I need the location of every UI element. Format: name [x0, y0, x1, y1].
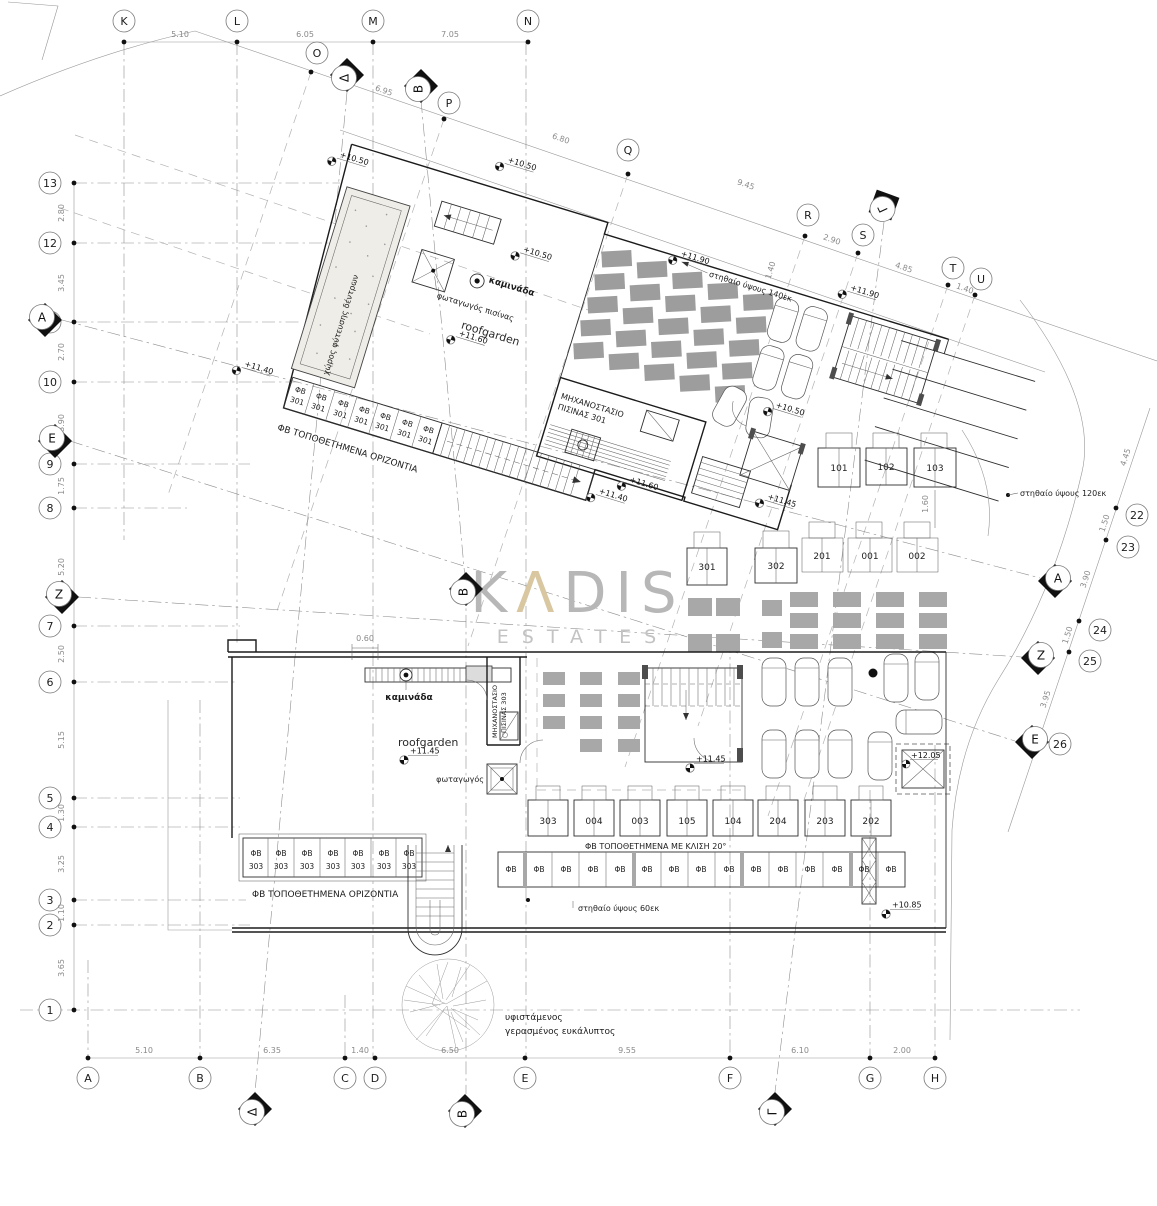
- svg-text:ΦΒ: ΦΒ: [401, 417, 414, 429]
- svg-text:1.75: 1.75: [57, 477, 66, 495]
- svg-text:+11.45: +11.45: [410, 747, 440, 756]
- svg-text:ΦΒ: ΦΒ: [275, 849, 286, 858]
- pv-terrace-groups: [688, 592, 947, 652]
- svg-text:1.10: 1.10: [57, 904, 66, 922]
- upper-building: χώρος φύτευσης δέντρων καμινάδα φωταγωγό…: [218, 96, 1053, 640]
- svg-text:ΦΒ: ΦΒ: [668, 865, 679, 874]
- svg-text:Δ: Δ: [338, 73, 352, 82]
- svg-text:ΦΒ: ΦΒ: [378, 849, 389, 858]
- svg-text:303: 303: [249, 862, 264, 871]
- pv-array-upper: [569, 242, 778, 411]
- upper-stairwell: [829, 312, 941, 406]
- svg-text:+12.05: +12.05: [911, 751, 941, 760]
- svg-text:+11.45: +11.45: [767, 492, 798, 509]
- svg-text:103: 103: [926, 464, 943, 474]
- svg-text:ΦΒ: ΦΒ: [327, 849, 338, 858]
- svg-text:T: T: [949, 262, 957, 275]
- svg-text:M: M: [368, 15, 378, 28]
- svg-text:F: F: [727, 1072, 733, 1085]
- lower-stairwell: [642, 665, 743, 762]
- svg-text:13: 13: [43, 177, 57, 190]
- storage-101: 101: [818, 433, 860, 487]
- plantroom-303-label2: ΠΙΣΙΝΑΣ 303: [500, 692, 508, 733]
- svg-text:3.45: 3.45: [57, 274, 66, 292]
- svg-text:303: 303: [351, 862, 366, 871]
- svg-text:3.65: 3.65: [57, 959, 66, 977]
- svg-text:102: 102: [877, 463, 894, 473]
- svg-text:Β: Β: [412, 85, 426, 93]
- svg-text:R: R: [804, 209, 812, 222]
- dim-060: 0.60: [352, 634, 378, 660]
- grid-diagonal-perpendiculars: [167, 72, 975, 816]
- svg-text:+10.50: +10.50: [507, 155, 538, 172]
- chimney-upper: καμινάδα φωταγωγός πισίνας: [428, 260, 535, 327]
- svg-text:1.30: 1.30: [57, 804, 66, 822]
- svg-text:Q: Q: [624, 144, 633, 157]
- svg-text:ΦΒ: ΦΒ: [379, 411, 392, 423]
- svg-text:Ζ: Ζ: [1037, 649, 1045, 663]
- dim-160: 1.60: [921, 495, 930, 513]
- svg-text:202: 202: [862, 817, 879, 827]
- elevation-1145-stair: +11.45: [686, 755, 726, 773]
- svg-text:C: C: [341, 1072, 349, 1085]
- svg-text:303: 303: [539, 817, 556, 827]
- svg-text:+11.90: +11.90: [849, 283, 880, 300]
- pool-lightwell-label: φωταγωγός πισίνας: [436, 290, 516, 323]
- storage-row-lower: 303 004 003 105 104 204 203 202: [528, 786, 891, 836]
- svg-text:6.10: 6.10: [791, 1046, 809, 1055]
- svg-text:ΦΒ: ΦΒ: [294, 385, 307, 397]
- pv-array-lower: [543, 672, 640, 752]
- svg-text:303: 303: [402, 862, 417, 871]
- storage-002: 002: [897, 522, 938, 572]
- svg-text:ΦΒ: ΦΒ: [505, 865, 516, 874]
- u-stair: [408, 845, 462, 955]
- chimney-label-lower: καμινάδα: [385, 693, 432, 703]
- svg-text:+11.45: +11.45: [696, 755, 726, 764]
- svg-text:2.00: 2.00: [893, 1046, 911, 1055]
- section-marker-epsilon-right: Ε: [1015, 725, 1049, 759]
- axis-top: K L M N 5.10 6.05 7.05: [113, 10, 539, 44]
- svg-text:1: 1: [47, 1004, 54, 1017]
- svg-text:ΦΒ: ΦΒ: [301, 849, 312, 858]
- svg-text:105: 105: [678, 817, 695, 827]
- skylight-1205: +12.05: [896, 744, 950, 794]
- storage-301: 301: [687, 532, 727, 585]
- site-boundary: [0, 2, 1157, 1040]
- section-marker-gamma-bottom: Γ: [758, 1092, 792, 1126]
- svg-text:ΦΒ: ΦΒ: [885, 865, 896, 874]
- elevation-1145-lower: +11.45: [400, 747, 440, 765]
- svg-text:7: 7: [47, 620, 54, 633]
- svg-text:ΦΒ: ΦΒ: [560, 865, 571, 874]
- svg-text:ΦΒ: ΦΒ: [422, 424, 435, 436]
- svg-text:0.60: 0.60: [356, 634, 374, 643]
- svg-text:H: H: [931, 1072, 939, 1085]
- svg-text:ΦΒ: ΦΒ: [777, 865, 788, 874]
- svg-text:104: 104: [724, 817, 741, 827]
- svg-text:5.10: 5.10: [171, 30, 189, 39]
- svg-text:3.95: 3.95: [1039, 689, 1053, 709]
- svg-text:ΦΒ: ΦΒ: [587, 865, 598, 874]
- svg-text:S: S: [860, 229, 867, 242]
- svg-text:ΦΒ: ΦΒ: [750, 865, 761, 874]
- svg-text:301: 301: [353, 414, 370, 427]
- svg-text:5.15: 5.15: [57, 731, 66, 749]
- grid-vertical-lines: [88, 42, 935, 1058]
- svg-text:ΦΒ: ΦΒ: [315, 391, 328, 403]
- svg-text:301: 301: [289, 395, 306, 408]
- storage-001: 001: [848, 522, 892, 572]
- svg-text:2.80: 2.80: [57, 204, 66, 222]
- svg-text:ΦΒ: ΦΒ: [831, 865, 842, 874]
- storage-103: 103: [914, 433, 956, 487]
- svg-text:003: 003: [631, 817, 648, 827]
- svg-text:3: 3: [47, 894, 54, 907]
- svg-text:ΦΒ: ΦΒ: [250, 849, 261, 858]
- section-marker-beta-top: Β: [404, 69, 438, 103]
- svg-text:301: 301: [310, 401, 327, 414]
- svg-text:1.50: 1.50: [1098, 513, 1112, 533]
- svg-text:B: B: [196, 1072, 204, 1085]
- svg-text:ΦΒ: ΦΒ: [804, 865, 815, 874]
- svg-text:ΦΒ: ΦΒ: [403, 849, 414, 858]
- svg-text:004: 004: [585, 817, 602, 827]
- kadis-watermark: KΛDIS ESTATES: [470, 561, 685, 648]
- svg-text:3.25: 3.25: [57, 855, 66, 873]
- section-marker-alpha-left: Α: [28, 303, 62, 337]
- pool-lightwell: [412, 249, 454, 291]
- svg-text:6.05: 6.05: [296, 30, 314, 39]
- svg-text:6.35: 6.35: [263, 1046, 281, 1055]
- svg-text:301: 301: [698, 563, 715, 573]
- svg-text:L: L: [234, 15, 241, 28]
- ramp-lanes: [865, 341, 1035, 501]
- pv-row-15: ΦΒΦΒΦΒΦΒΦΒΦΒΦΒΦΒΦΒΦΒΦΒΦΒΦΒΦΒΦΒ: [498, 852, 905, 887]
- svg-text:303: 303: [300, 862, 315, 871]
- svg-text:303: 303: [377, 862, 392, 871]
- section-marker-delta-bottom: Δ: [238, 1092, 272, 1126]
- svg-text:+10.85: +10.85: [892, 901, 922, 910]
- planting-strip: χώρος φύτευσης δέντρων: [291, 187, 410, 388]
- svg-text:24: 24: [1093, 624, 1107, 637]
- svg-text:1.40: 1.40: [351, 1046, 369, 1055]
- section-marker-epsilon-left: Ε: [38, 424, 72, 458]
- svg-text:101: 101: [830, 464, 847, 474]
- svg-text:ΦΒ: ΦΒ: [352, 849, 363, 858]
- elevation-1085: +10.85: [882, 901, 922, 919]
- storage-201: 201: [802, 522, 843, 572]
- svg-text:ΦΒ: ΦΒ: [614, 865, 625, 874]
- svg-text:4: 4: [47, 821, 54, 834]
- svg-text:302: 302: [767, 562, 784, 572]
- svg-text:ΦΒ: ΦΒ: [337, 398, 350, 410]
- floor-plan-drawing: KΛDIS ESTATES χώρος φύτευσης δέντρων: [0, 0, 1157, 1206]
- svg-text:1.50: 1.50: [1061, 625, 1075, 645]
- svg-text:2.70: 2.70: [57, 343, 66, 361]
- lightwell-lower: φωταγωγός: [436, 764, 517, 794]
- svg-text:201: 201: [813, 552, 830, 562]
- upper-roof-stair: [434, 201, 501, 244]
- svg-text:ΦΒ: ΦΒ: [641, 865, 652, 874]
- svg-text:P: P: [446, 97, 453, 110]
- svg-text:K: K: [120, 15, 128, 28]
- svg-text:U: U: [977, 273, 985, 286]
- watermark-brand: KΛDIS: [470, 561, 685, 626]
- watermark-subtitle: ESTATES: [497, 626, 669, 648]
- svg-text:301: 301: [396, 427, 413, 440]
- parapet-60-label: στηθαίο ύψους 60εκ: [578, 903, 659, 913]
- svg-text:2: 2: [47, 919, 54, 932]
- svg-text:Β: Β: [457, 588, 471, 596]
- svg-text:+10.50: +10.50: [339, 150, 370, 167]
- axis-bottom: A B C D E F G H 5.10 6.35 1.40 6.50 9.55…: [77, 1046, 946, 1089]
- sunbeds-terrace: [762, 652, 942, 780]
- lightwell-label: φωταγωγός: [436, 774, 484, 784]
- svg-text:10: 10: [43, 376, 57, 389]
- svg-text:9.45: 9.45: [736, 177, 756, 191]
- svg-text:303: 303: [274, 862, 289, 871]
- svg-text:25: 25: [1083, 655, 1097, 668]
- svg-text:303: 303: [326, 862, 341, 871]
- svg-text:6: 6: [47, 676, 54, 689]
- svg-text:001: 001: [861, 552, 878, 562]
- svg-text:23: 23: [1121, 541, 1135, 554]
- svg-text:Β: Β: [456, 1110, 470, 1118]
- pv-tilted-label: ΦΒ ΤΟΠΟΘΕΤΗΜΕΝΑ ΜΕ ΚΛΙΣΗ 20°: [585, 842, 726, 851]
- axis-right: 22 23 24 25 26 4.45 1.50 3.90 1.50 3.95: [1008, 408, 1150, 832]
- svg-text:+10.50: +10.50: [522, 245, 553, 262]
- svg-text:203: 203: [816, 817, 833, 827]
- chimney-label: καμινάδα: [487, 276, 535, 299]
- svg-text:E: E: [522, 1072, 529, 1085]
- svg-text:G: G: [866, 1072, 875, 1085]
- svg-text:5.20: 5.20: [57, 558, 66, 576]
- section-marker-gamma-top: Γ: [861, 182, 906, 227]
- svg-text:Ε: Ε: [1031, 733, 1039, 747]
- svg-text:Δ: Δ: [246, 1107, 260, 1116]
- svg-text:Ε: Ε: [48, 432, 56, 446]
- section-marker-beta-bottom: Β: [448, 1094, 482, 1128]
- svg-text:+11.40: +11.40: [243, 359, 274, 376]
- svg-text:2.90: 2.90: [822, 232, 842, 246]
- svg-text:ΦΒ: ΦΒ: [533, 865, 544, 874]
- eucalyptus-tree: υφιστάμενος γερασμένος ευκάλυπτος: [402, 959, 615, 1051]
- svg-text:Α: Α: [1054, 572, 1063, 586]
- svg-text:204: 204: [769, 817, 786, 827]
- pv-horizontal-label-lower: ΦΒ ΤΟΠΟΘΕΤΗΜΕΝΑ ΟΡΙΖΟΝΤΙΑ: [252, 890, 399, 900]
- svg-text:2.50: 2.50: [57, 645, 66, 663]
- svg-text:301: 301: [374, 421, 391, 434]
- svg-text:ΦΒ: ΦΒ: [358, 404, 371, 416]
- storage-102: 102: [866, 433, 907, 485]
- svg-text:002: 002: [908, 552, 925, 562]
- svg-text:N: N: [524, 15, 532, 28]
- plantroom-303-label1: ΜΗΧΑΝΟΣΤΑΣΙΟ: [491, 685, 499, 738]
- svg-text:6.50: 6.50: [441, 1046, 459, 1055]
- svg-text:7.05: 7.05: [441, 30, 459, 39]
- svg-text:D: D: [371, 1072, 379, 1085]
- svg-text:O: O: [313, 47, 322, 60]
- dim-140: 1.40: [764, 260, 778, 280]
- tree-label-1: υφιστάμενος: [505, 1013, 563, 1023]
- svg-text:9: 9: [47, 458, 54, 471]
- svg-text:4.45: 4.45: [1119, 447, 1133, 467]
- svg-text:12: 12: [43, 237, 57, 250]
- svg-text:ΦΒ: ΦΒ: [695, 865, 706, 874]
- svg-text:22: 22: [1130, 509, 1144, 522]
- parapet-120-label: στηθαίο ύψους 120εκ: [1020, 488, 1107, 498]
- chimney-band: καμινάδα: [365, 666, 511, 703]
- svg-text:+10.50: +10.50: [775, 400, 806, 417]
- svg-text:8: 8: [47, 502, 54, 515]
- section-marker-delta-top: Δ: [330, 58, 364, 92]
- tree-label-2: γερασμένος ευκάλυπτος: [505, 1026, 615, 1037]
- svg-text:4.85: 4.85: [894, 260, 914, 274]
- svg-text:9.55: 9.55: [618, 1046, 636, 1055]
- svg-text:5: 5: [47, 792, 54, 805]
- upper-small-stair: [692, 457, 751, 508]
- pv-row-303: ΦΒ303 ΦΒ303 ΦΒ303 ΦΒ303 ΦΒ303 ΦΒ303 ΦΒ30…: [239, 834, 426, 881]
- svg-text:6.80: 6.80: [551, 131, 571, 145]
- svg-text:ΦΒ: ΦΒ: [723, 865, 734, 874]
- svg-text:A: A: [84, 1072, 92, 1085]
- svg-text:Ζ: Ζ: [55, 588, 63, 602]
- svg-text:26: 26: [1053, 738, 1067, 751]
- section-marker-zeta-right: Ζ: [1021, 641, 1055, 675]
- svg-text:301: 301: [417, 434, 434, 447]
- svg-text:301: 301: [332, 408, 349, 421]
- svg-text:5.10: 5.10: [135, 1046, 153, 1055]
- svg-text:Α: Α: [38, 311, 47, 325]
- svg-text:Γ: Γ: [766, 1108, 780, 1115]
